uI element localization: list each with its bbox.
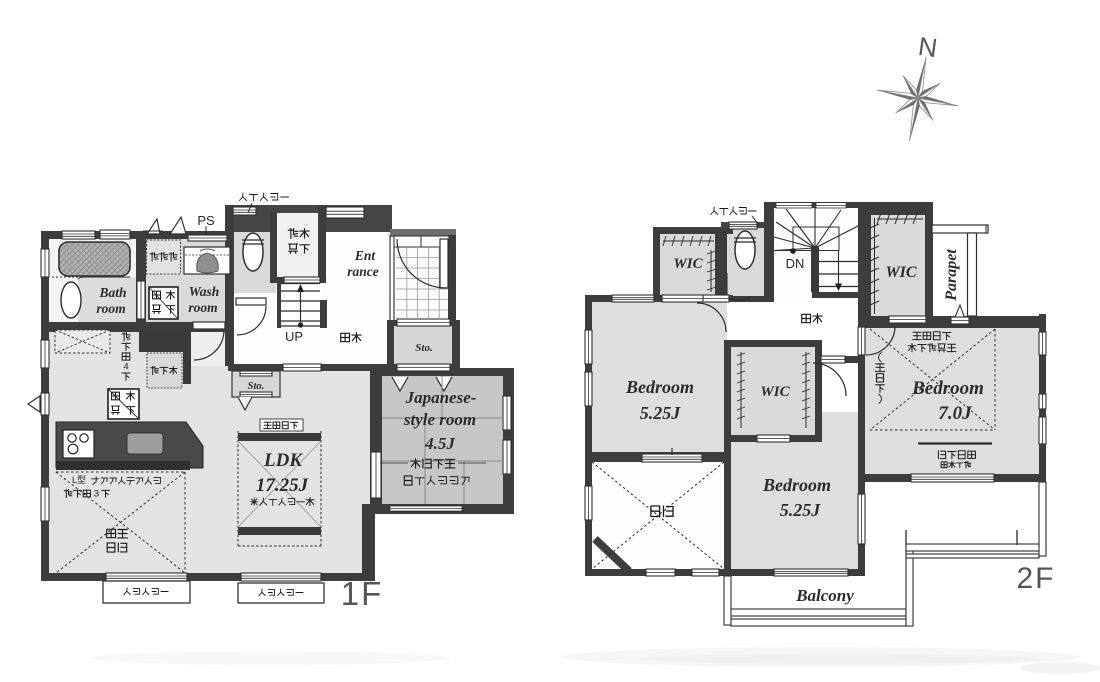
svg-text:Japanese-: Japanese- — [405, 388, 477, 407]
svg-text:Sto.: Sto. — [248, 381, 265, 392]
svg-text:4.5J: 4.5J — [424, 434, 455, 453]
svg-text:Parapet: Parapet — [943, 249, 960, 302]
svg-text:L型: L型 — [72, 475, 86, 485]
svg-text:PS: PS — [197, 213, 215, 228]
svg-text:Sto.: Sto. — [415, 342, 432, 354]
svg-text:room: room — [188, 300, 217, 315]
svg-text:7.0J: 7.0J — [938, 403, 972, 424]
svg-text:LDK: LDK — [263, 450, 303, 471]
svg-text:1F: 1F — [341, 575, 384, 612]
svg-text:17.25J: 17.25J — [256, 475, 309, 496]
svg-text:WIC: WIC — [760, 384, 790, 400]
svg-text:2F: 2F — [1016, 562, 1055, 595]
svg-text:room: room — [96, 301, 125, 316]
svg-text:UP: UP — [285, 329, 303, 344]
svg-text:WIC: WIC — [673, 256, 703, 272]
svg-text:Wash: Wash — [189, 284, 220, 299]
svg-text:rance: rance — [347, 264, 379, 279]
svg-text:3: 3 — [94, 488, 99, 499]
svg-text:DN: DN — [786, 256, 805, 271]
svg-text:4: 4 — [123, 362, 128, 373]
svg-text:WIC: WIC — [885, 264, 916, 281]
svg-text:Bedroom: Bedroom — [762, 475, 831, 495]
svg-text:Balcony: Balcony — [795, 586, 854, 605]
svg-text:style room: style room — [403, 410, 476, 429]
svg-text:Ent: Ent — [354, 248, 377, 263]
svg-text:5.25J: 5.25J — [640, 403, 682, 423]
svg-text:5.25J: 5.25J — [780, 500, 822, 520]
svg-text:Bath: Bath — [98, 285, 126, 300]
svg-text:Bedroom: Bedroom — [625, 377, 694, 397]
svg-text:Bedroom: Bedroom — [911, 378, 984, 399]
